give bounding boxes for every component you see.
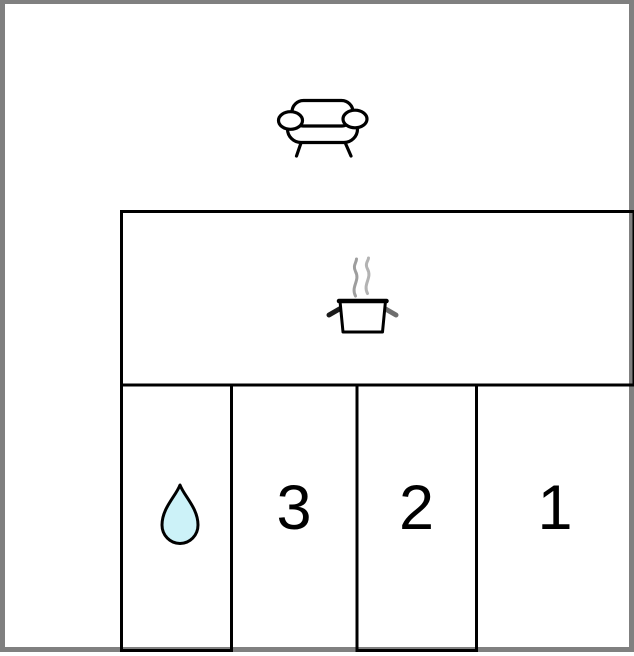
room-2-region[interactable]: [359, 387, 475, 649]
floor-plan-drawing: 3 2 1: [5, 4, 634, 656]
bathroom-region[interactable]: [123, 387, 230, 649]
living-area-region[interactable]: [10, 8, 634, 210]
room-3-region[interactable]: [233, 387, 355, 650]
floor-plan-frame: 3 2 1: [0, 0, 634, 652]
room-1-region[interactable]: [478, 387, 633, 650]
kitchen-region[interactable]: [123, 213, 632, 383]
